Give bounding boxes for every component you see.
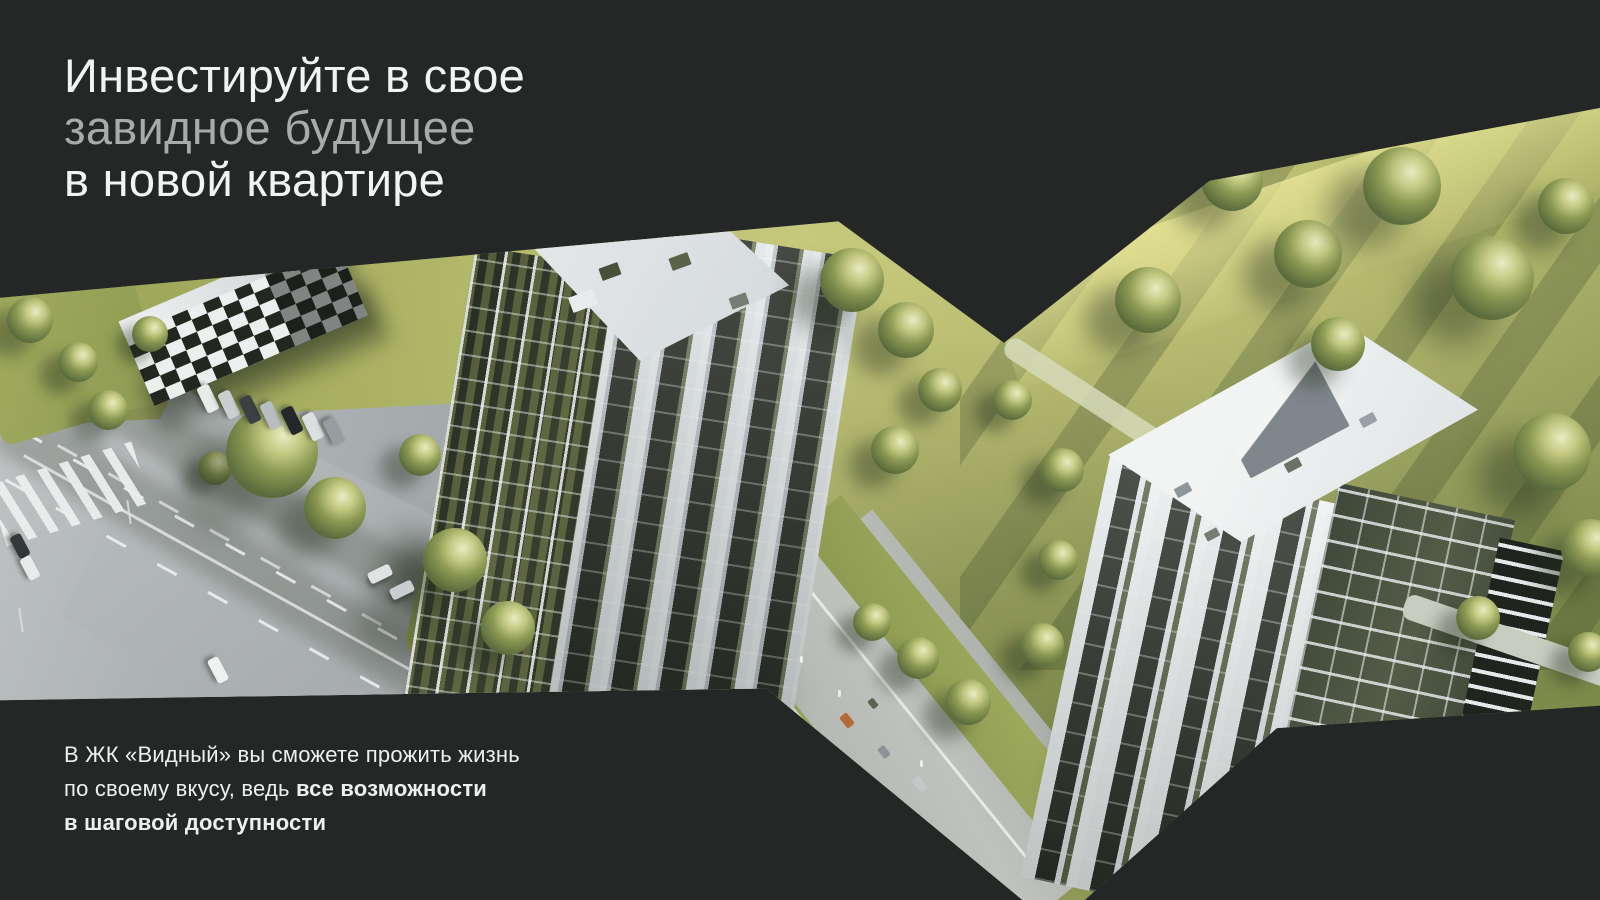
tree xyxy=(423,528,487,592)
tree xyxy=(88,390,128,430)
tree xyxy=(304,477,366,539)
tree xyxy=(820,248,884,312)
description: В ЖК «Видный» вы сможете прожить жизнь п… xyxy=(64,738,520,840)
headline-line-2: завидное будущее xyxy=(64,102,525,154)
tree xyxy=(871,426,919,474)
tree xyxy=(1049,197,1107,255)
tree xyxy=(1038,540,1078,580)
tree xyxy=(1274,220,1342,288)
tree xyxy=(878,302,934,358)
headline: Инвестируйте в свое завидное будущее в н… xyxy=(64,50,525,206)
description-line-2: по своему вкусу, ведь все возможности xyxy=(64,772,520,806)
description-line-3-bold: в шаговой доступности xyxy=(64,810,326,835)
tree xyxy=(1513,413,1591,491)
description-line-2-regular: по своему вкусу, ведь xyxy=(64,776,296,801)
tree xyxy=(58,342,98,382)
tree xyxy=(1568,632,1600,672)
tree xyxy=(945,679,991,725)
center-tower xyxy=(430,215,850,755)
tree xyxy=(853,603,891,641)
tree xyxy=(1115,267,1181,333)
tree xyxy=(1201,149,1263,211)
tree xyxy=(897,637,939,679)
tree xyxy=(1020,623,1064,667)
tree xyxy=(1450,236,1534,320)
tree xyxy=(918,368,962,412)
tree xyxy=(7,297,53,343)
tree xyxy=(1456,596,1500,640)
tree xyxy=(481,601,535,655)
tree xyxy=(1363,147,1441,225)
tree xyxy=(1311,317,1365,371)
headline-line-1: Инвестируйте в свое xyxy=(64,50,525,102)
description-line-1: В ЖК «Видный» вы сможете прожить жизнь xyxy=(64,738,520,772)
tree xyxy=(1538,178,1594,234)
headline-line-3: в новой квартире xyxy=(64,154,525,206)
tree xyxy=(399,434,441,476)
promo-slide: Инвестируйте в свое завидное будущее в н… xyxy=(0,0,1600,900)
tree xyxy=(1040,448,1084,492)
description-line-3: в шаговой доступности xyxy=(64,806,520,840)
tree xyxy=(132,316,168,352)
right-tower-facade xyxy=(1021,456,1337,900)
pedestrian xyxy=(920,760,923,767)
pedestrian xyxy=(838,690,841,697)
description-line-2-bold: все возможности xyxy=(296,776,487,801)
tree xyxy=(992,380,1032,420)
pedestrian xyxy=(800,656,803,663)
